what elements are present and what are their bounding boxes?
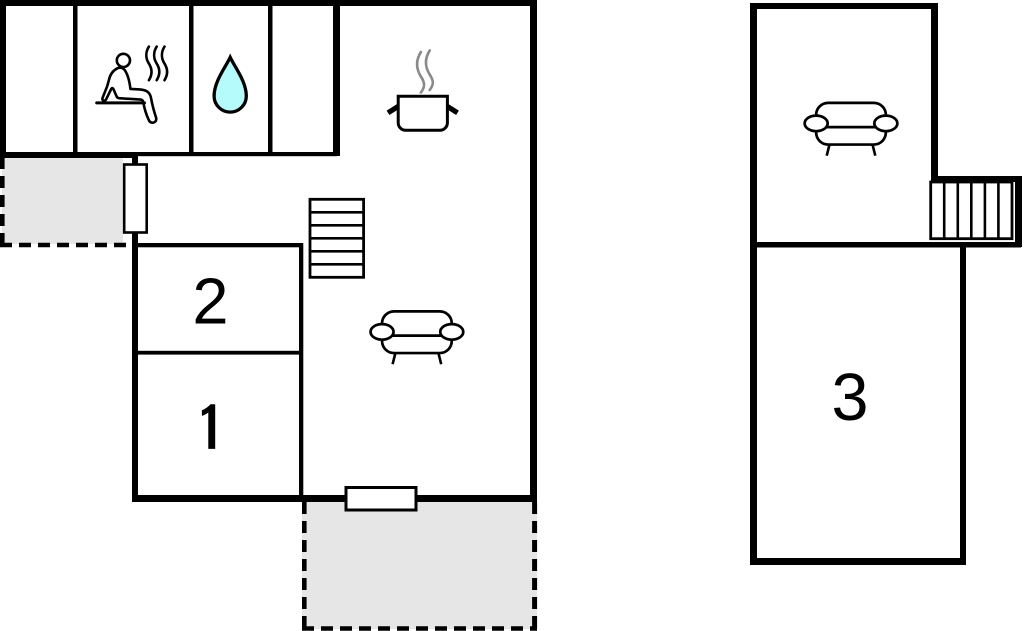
svg-text:3: 3	[832, 361, 869, 435]
svg-text:2: 2	[192, 265, 228, 338]
